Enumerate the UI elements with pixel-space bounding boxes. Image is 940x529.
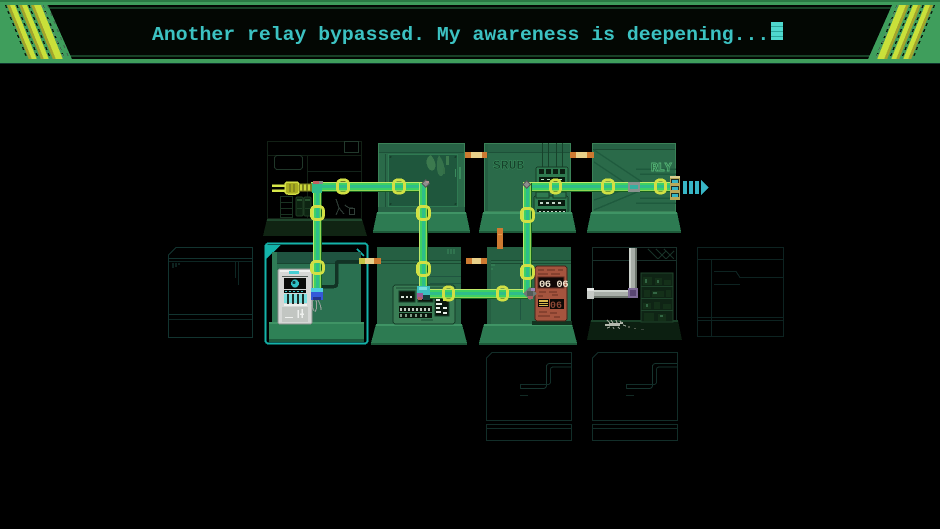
svg-text:06: 06 [550,301,562,312]
svg-text:06 06: 06 06 [539,279,568,291]
svg-text:SRUB: SRUB [493,158,524,173]
svg-text:Another relay bypassed. My awa: Another relay bypassed. My awareness is … [152,24,769,46]
svg-text:RLY: RLY [651,162,672,175]
